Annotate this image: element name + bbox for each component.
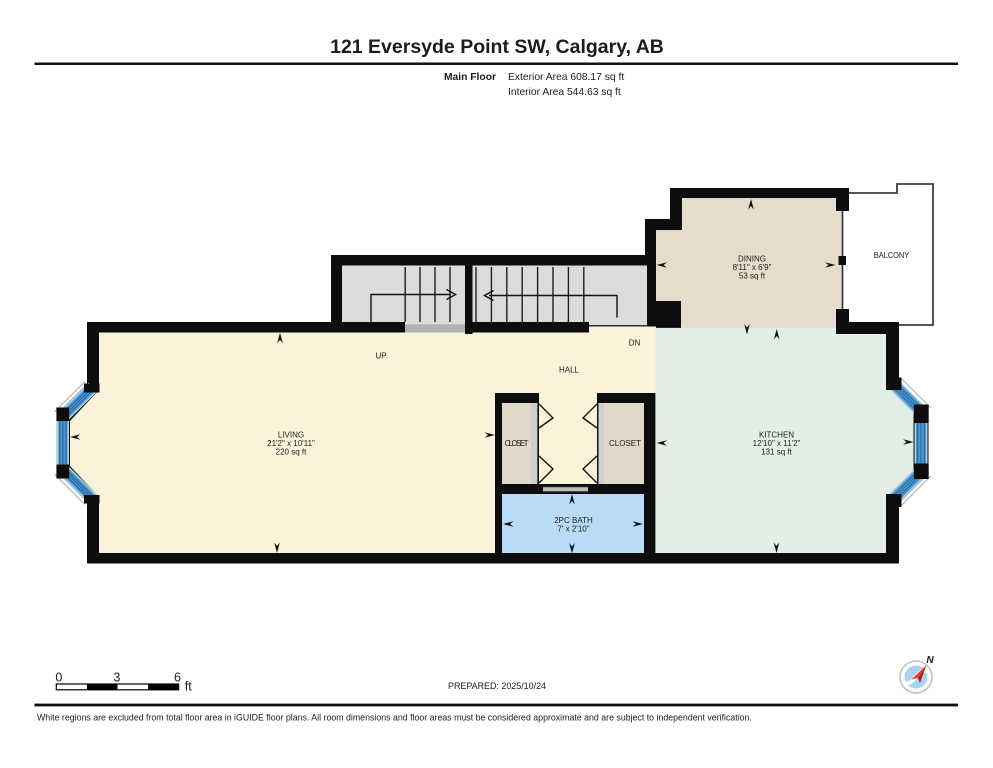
svg-text:0: 0 <box>55 670 62 684</box>
svg-text:131 sq ft: 131 sq ft <box>761 447 792 456</box>
svg-text:CLOSET: CLOSET <box>505 439 529 448</box>
svg-text:ft: ft <box>185 680 192 694</box>
svg-text:N: N <box>926 655 934 666</box>
svg-text:121 Eversyde Point SW, Calgary: 121 Eversyde Point SW, Calgary, AB <box>330 36 664 58</box>
svg-text:6: 6 <box>174 670 181 684</box>
svg-text:PREPARED: 2025/10/24: PREPARED: 2025/10/24 <box>448 681 546 692</box>
svg-text:Exterior Area 608.17 sq ft: Exterior Area 608.17 sq ft <box>508 72 624 83</box>
svg-text:7' x 2'10": 7' x 2'10" <box>557 525 589 534</box>
svg-text:UP: UP <box>375 352 386 361</box>
svg-text:CLOSET: CLOSET <box>609 439 641 448</box>
svg-text:DN: DN <box>629 339 641 348</box>
svg-text:BALCONY: BALCONY <box>874 251 910 260</box>
svg-text:53 sq ft: 53 sq ft <box>739 272 766 281</box>
svg-text:White regions are excluded fro: White regions are excluded from total fl… <box>37 713 752 723</box>
svg-text:3: 3 <box>113 670 120 684</box>
svg-text:HALL: HALL <box>559 366 580 375</box>
svg-text:Main Floor: Main Floor <box>444 72 496 83</box>
svg-text:220 sq ft: 220 sq ft <box>276 447 307 456</box>
svg-text:Interior Area 544.63 sq ft: Interior Area 544.63 sq ft <box>508 87 621 98</box>
